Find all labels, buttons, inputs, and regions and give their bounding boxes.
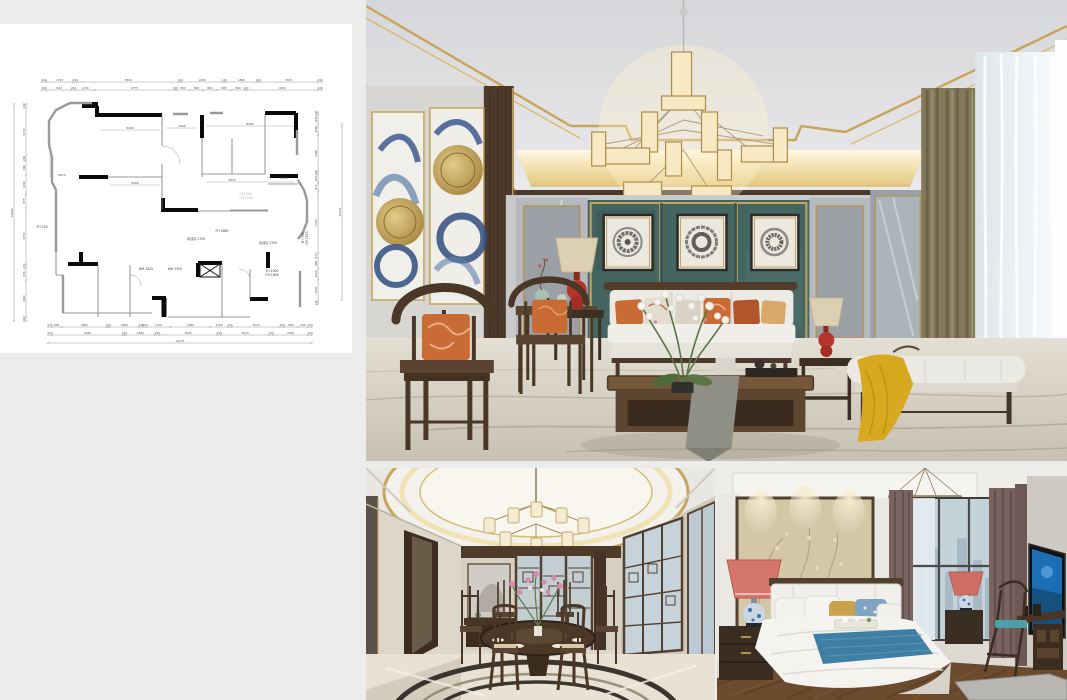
svg-text:200: 200 [22, 263, 26, 269]
living-room-scene [366, 0, 1067, 461]
svg-text:6250: 6250 [246, 122, 254, 126]
svg-text:吊顶高 2700: 吊顶高 2700 [259, 240, 277, 245]
svg-text:120: 120 [178, 78, 184, 82]
svg-text:870: 870 [314, 184, 318, 190]
svg-text:240: 240 [217, 331, 223, 335]
svg-text:1000: 1000 [314, 270, 318, 277]
svg-text:1880: 1880 [137, 331, 144, 335]
svg-text:240: 240 [314, 300, 318, 306]
svg-text:3325: 3325 [285, 78, 292, 82]
abstract-art-panel-2 [430, 108, 484, 304]
svg-text:5800: 5800 [125, 78, 132, 82]
svg-text:840: 840 [314, 116, 318, 122]
svg-text:2860: 2860 [81, 323, 88, 327]
svg-text:5200: 5200 [131, 181, 139, 185]
svg-text:120: 120 [243, 86, 249, 90]
dining-room-photo [366, 468, 715, 700]
svg-text:830: 830 [22, 271, 26, 277]
abstract-art-panel-1 [372, 112, 424, 300]
svg-text:12520: 12520 [338, 207, 342, 216]
bedroom-nightstand-right [945, 610, 983, 644]
svg-text:240: 240 [155, 331, 161, 335]
svg-text:WH 2425: WH 2425 [168, 267, 182, 271]
living-room-photo [366, 0, 1067, 461]
svg-text:800: 800 [235, 86, 241, 90]
svg-text:1525: 1525 [55, 86, 62, 90]
svg-text:885: 885 [221, 86, 227, 90]
svg-text:1880: 1880 [121, 323, 128, 327]
svg-text:14440: 14440 [10, 208, 14, 217]
svg-text:940: 940 [22, 165, 26, 171]
svg-text:240: 240 [22, 156, 26, 162]
svg-text:CH 1970: CH 1970 [305, 231, 309, 244]
svg-text:4775: 4775 [131, 86, 138, 90]
svg-text:3440: 3440 [314, 149, 318, 156]
svg-text:800: 800 [194, 86, 200, 90]
svg-text:120: 120 [122, 331, 128, 335]
svg-text:CH 1290: CH 1290 [239, 196, 252, 200]
svg-text:16575: 16575 [176, 339, 185, 343]
svg-text:TH 720: TH 720 [35, 225, 47, 229]
svg-text:WH 2425: WH 2425 [139, 267, 153, 271]
svg-text:240: 240 [47, 323, 53, 327]
svg-text:800: 800 [314, 175, 318, 181]
svg-text:FH 3080: FH 3080 [216, 229, 229, 233]
svg-text:2440: 2440 [22, 295, 26, 302]
floorplan-walls [68, 102, 298, 317]
svg-text:1800: 1800 [238, 78, 245, 82]
svg-text:240: 240 [47, 331, 53, 335]
svg-text:120: 120 [106, 323, 112, 327]
svg-text:200: 200 [142, 323, 148, 327]
svg-text:240: 240 [307, 323, 313, 327]
svg-text:800: 800 [207, 86, 213, 90]
svg-text:1100: 1100 [216, 323, 223, 327]
svg-text:240: 240 [317, 86, 323, 90]
svg-text:1090: 1090 [314, 125, 318, 132]
svg-text:1130: 1130 [81, 86, 88, 90]
svg-text:3020: 3020 [242, 331, 249, 335]
svg-text:2480: 2480 [187, 323, 194, 327]
svg-text:240: 240 [72, 78, 78, 82]
floorplan-panel: 2401525240580012024001201800120332524024… [0, 24, 352, 353]
bedroom-photo [717, 468, 1067, 700]
svg-text:240: 240 [22, 316, 26, 322]
svg-text:2100: 2100 [314, 287, 318, 294]
wall-tv [1029, 544, 1065, 638]
svg-text:5200: 5200 [126, 126, 134, 130]
svg-text:875: 875 [22, 198, 26, 204]
svg-text:120: 120 [222, 78, 228, 82]
svg-text:2075: 2075 [58, 173, 66, 177]
svg-text:1510: 1510 [155, 323, 162, 327]
svg-text:240: 240 [41, 78, 47, 82]
floorplan-svg: 2401525240580012024001201800120332524024… [0, 24, 352, 353]
svg-text:4490: 4490 [84, 331, 91, 335]
svg-text:240: 240 [269, 331, 275, 335]
svg-text:120: 120 [256, 78, 262, 82]
svg-text:240: 240 [307, 331, 313, 335]
bedroom-scene [717, 468, 1067, 700]
svg-text:240: 240 [280, 323, 286, 327]
svg-text:2200: 2200 [287, 331, 294, 335]
svg-text:120: 120 [173, 86, 179, 90]
svg-text:吊顶高 2700: 吊顶高 2700 [187, 236, 205, 241]
svg-text:2400: 2400 [178, 124, 186, 128]
svg-text:640: 640 [300, 323, 306, 327]
svg-text:1290: 1290 [22, 181, 26, 188]
svg-text:475: 475 [314, 253, 318, 259]
svg-text:4415: 4415 [228, 178, 236, 182]
svg-text:600: 600 [54, 323, 60, 327]
svg-text:240: 240 [314, 170, 318, 176]
svg-text:5790: 5790 [314, 219, 318, 226]
svg-text:240: 240 [22, 103, 26, 109]
ring-artworks [604, 215, 799, 270]
svg-text:240: 240 [314, 110, 318, 116]
svg-text:800: 800 [180, 86, 186, 90]
floorplan-shaft [200, 264, 220, 277]
svg-text:1525: 1525 [56, 78, 63, 82]
svg-text:2400: 2400 [199, 78, 206, 82]
lattice-window [624, 518, 682, 655]
svg-text:3020: 3020 [252, 323, 259, 327]
svg-text:3760: 3760 [22, 232, 26, 239]
svg-text:CH 1690: CH 1690 [265, 273, 278, 277]
svg-text:1600: 1600 [280, 176, 288, 180]
svg-text:3230: 3230 [22, 128, 26, 135]
svg-text:4250: 4250 [279, 86, 286, 90]
floorplan-partitions [56, 114, 298, 317]
svg-text:860: 860 [288, 323, 294, 327]
svg-text:240: 240 [317, 78, 323, 82]
svg-text:3645: 3645 [185, 331, 192, 335]
svg-text:980: 980 [314, 260, 318, 266]
svg-text:240: 240 [71, 86, 77, 90]
svg-text:240: 240 [227, 323, 233, 327]
dining-room-scene [366, 468, 715, 700]
svg-text:240: 240 [41, 86, 47, 90]
